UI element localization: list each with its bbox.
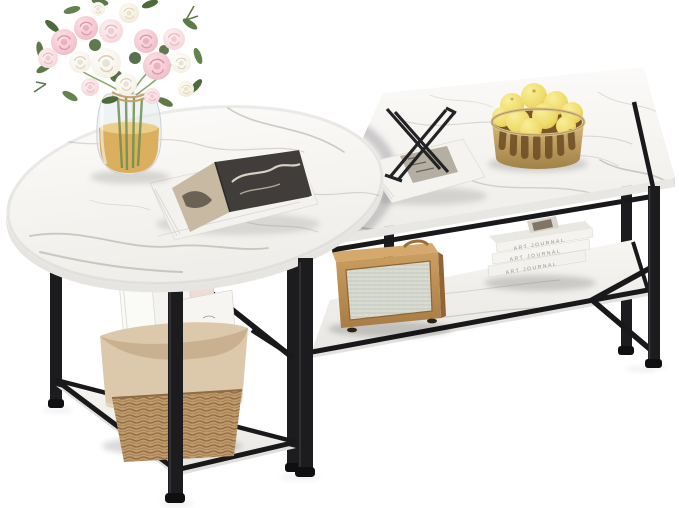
scene-svg: ART JOURNAL ART JOURNAL ART JOURNAL [0,0,679,508]
rect-table-leg-front-left [295,258,315,477]
round-table [0,85,394,503]
product-photo: ART JOURNAL ART JOURNAL ART JOURNAL [0,0,679,508]
rattan-radio [328,241,452,337]
flower-bouquet [34,0,204,109]
journal-stack: ART JOURNAL ART JOURNAL ART JOURNAL [484,216,596,291]
round-table-leg-front [165,268,185,503]
